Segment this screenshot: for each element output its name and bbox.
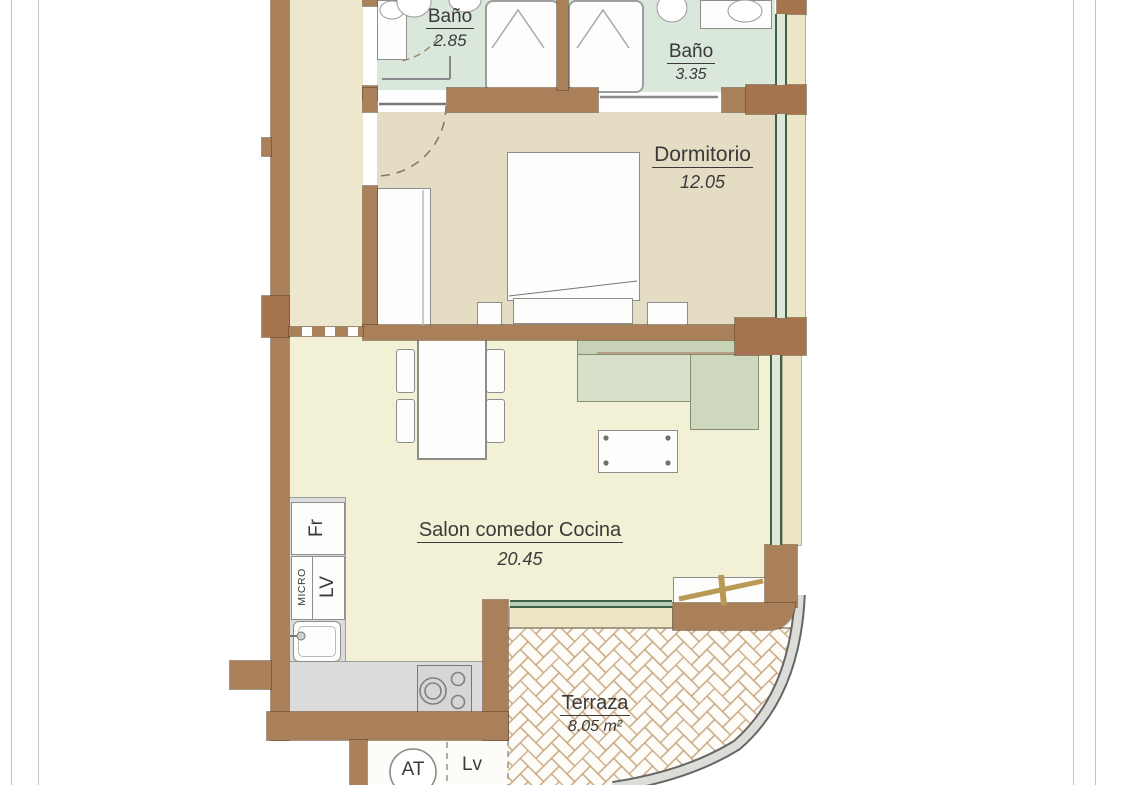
room-label-bedroom: Dormitorio <box>640 143 765 167</box>
floor-plan-page: Baño 2.85 Baño 3.35 Dormitorio 12.05 Sal… <box>0 0 1130 785</box>
water-heater-label: AT <box>390 759 436 781</box>
room-label-terrace: Terraza <box>545 692 645 715</box>
dishwasher-label: LV <box>312 556 343 618</box>
sink-icon <box>728 0 762 22</box>
room-label-living: Salon comedor Cocina <box>398 519 642 542</box>
room-area-bathroom-2: 3.35 <box>646 66 736 84</box>
drying-rod-bracket-icon <box>721 575 724 605</box>
detail-overlay <box>0 0 1130 785</box>
room-label-bathroom-2: Baño <box>646 41 736 63</box>
bed-fold-line <box>509 281 637 296</box>
door-swing-bedroom <box>377 106 446 176</box>
stove-burners-icon <box>420 673 465 709</box>
microwave-label: MICRO <box>291 556 312 618</box>
toilet-icon <box>657 0 687 22</box>
shower-symbol-icon <box>577 10 629 48</box>
washing-machine-label: Lv <box>450 754 494 776</box>
room-area-terrace: 8.05 m² <box>545 718 645 736</box>
coffee-table-dots <box>603 435 670 465</box>
room-area-bathroom-1: 2.85 <box>405 31 495 51</box>
faucet-knob-icon <box>297 632 305 640</box>
room-area-bedroom: 12.05 <box>640 172 765 193</box>
room-label-bathroom-1: Baño <box>405 6 495 28</box>
fridge-label: Fr <box>291 502 343 553</box>
shower-symbol-icon <box>492 10 544 48</box>
room-area-living: 20.45 <box>398 549 642 570</box>
